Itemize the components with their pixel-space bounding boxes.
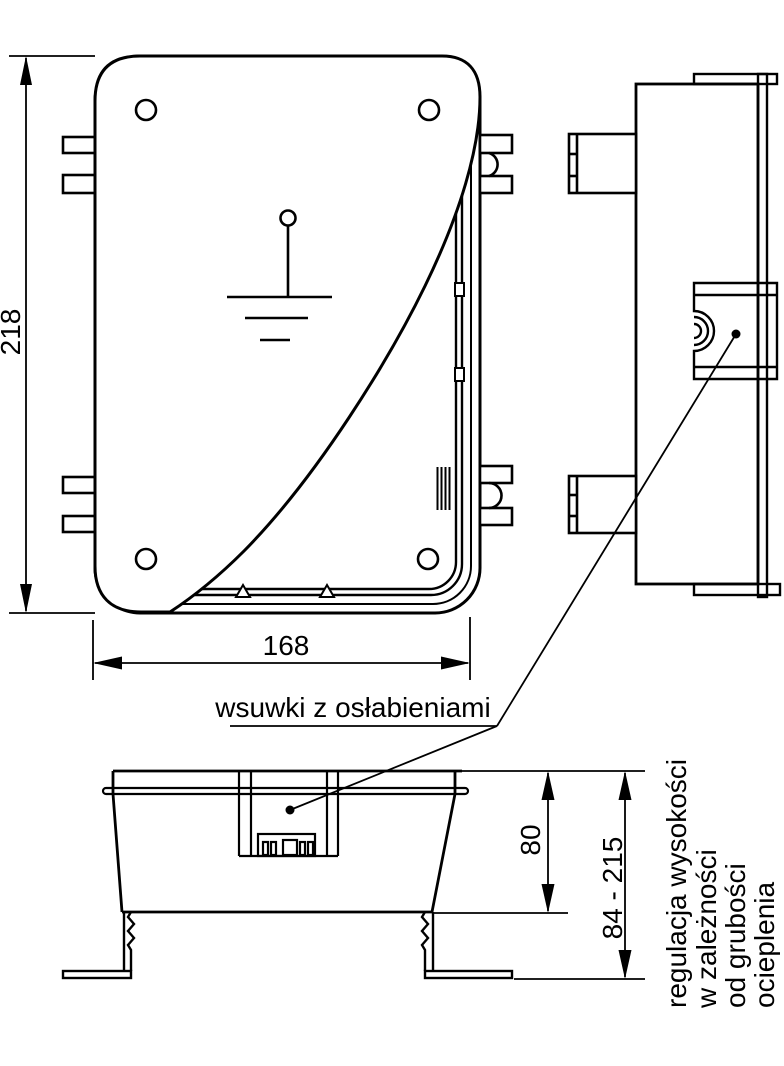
bottom-view [63, 771, 512, 978]
dim-218-value: 218 [0, 309, 26, 356]
dim-168-value: 168 [263, 630, 310, 661]
leader-to-bottom-view [290, 726, 497, 810]
side-top-flange [694, 74, 777, 84]
screw-hole [136, 100, 156, 120]
arrowhead-right [441, 657, 470, 670]
arrowhead-down [619, 950, 632, 979]
peeled-cover [95, 56, 480, 612]
leader-dot [286, 806, 295, 815]
rim-notch [320, 585, 334, 597]
arrowhead-left [93, 657, 122, 670]
side-view [569, 74, 780, 597]
bottom-left-wall [113, 771, 122, 912]
dim-84-215-value: 84 - 215 [597, 837, 628, 940]
screw-hole [418, 549, 438, 569]
rim-clip [455, 368, 464, 381]
front-view [63, 56, 512, 613]
slides-label: wsuwki z osłabieniami [214, 692, 490, 723]
technical-drawing-page: 218 168 80 84 - 215 wsuwki z osłabieniam… [0, 0, 784, 1066]
front-lip [103, 788, 468, 794]
rim-notch [236, 585, 250, 597]
note-line-2: w zależności [691, 849, 722, 1009]
bottom-right-wall [432, 771, 455, 912]
note-line-4: ocieplenia [749, 881, 780, 1008]
arrowhead-up [542, 771, 555, 800]
leader-to-side-view [497, 334, 736, 726]
side-tab-top [569, 134, 636, 193]
screw-hole [419, 100, 439, 120]
right-leg [422, 912, 512, 978]
leader-dot [732, 330, 741, 339]
rim-clip [455, 283, 464, 296]
arrowhead-up [619, 771, 632, 800]
arrowhead-up [20, 56, 32, 85]
arrowhead-down [542, 884, 555, 913]
height-adjust-note: regulacja wysokości w zależności od grub… [661, 759, 780, 1009]
left-leg [63, 912, 134, 978]
dim-80-value: 80 [515, 824, 546, 855]
note-line-1: regulacja wysokości [661, 759, 692, 1008]
side-tab-bottom [569, 476, 636, 533]
vent-slots [438, 467, 450, 510]
technical-drawing: 218 168 80 84 - 215 wsuwki z osłabieniam… [0, 0, 784, 1066]
mounting-tabs-left [63, 137, 95, 532]
screw-hole [136, 549, 156, 569]
arrowhead-down [20, 584, 32, 613]
mounting-tabs-right [480, 135, 512, 525]
note-line-3: od grubości [720, 863, 751, 1008]
